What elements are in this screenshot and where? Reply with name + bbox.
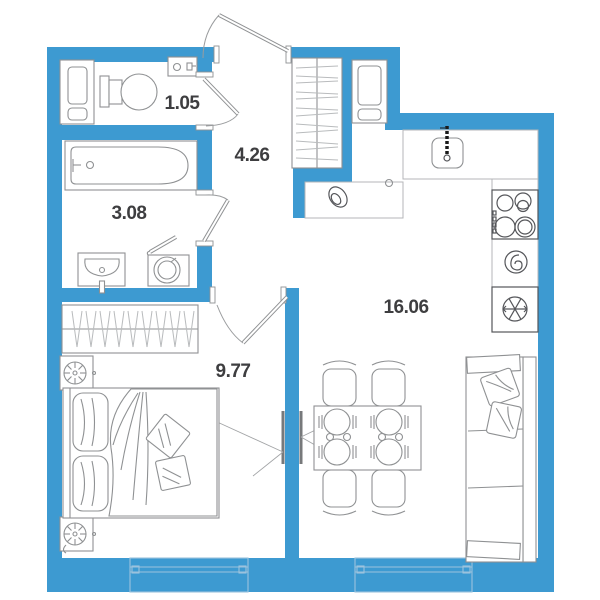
counter-knob <box>386 180 393 187</box>
entrance-door-icon <box>203 15 291 63</box>
chair-icon <box>372 361 405 406</box>
room-label-bathroom: 3.08 <box>112 203 147 224</box>
floor-plan: 1.05 4.26 3.08 9.77 16.06 <box>0 0 600 600</box>
double-bed-icon <box>63 388 219 518</box>
wardrobe-icon <box>62 305 198 353</box>
oven-icon <box>505 251 527 273</box>
pillow-icon <box>486 401 522 439</box>
lamp-icon <box>64 523 86 545</box>
room-label-bedroom: 9.77 <box>216 361 251 382</box>
pillow-icon <box>73 393 108 451</box>
storage-cabinet-icon <box>352 60 387 123</box>
bathtub-icon <box>65 141 197 190</box>
washbasin-icon <box>168 57 197 76</box>
pillow-icon <box>155 455 191 491</box>
cooktop-icon <box>492 190 538 239</box>
interior-door-icon <box>196 72 238 130</box>
wardrobe-icon <box>292 58 342 168</box>
nightstand-icon <box>60 356 96 390</box>
kitchen-sink-icon <box>432 126 463 168</box>
nightstand-icon <box>60 517 96 553</box>
toilet-icon <box>100 74 157 110</box>
chair-icon <box>323 361 356 406</box>
floor-plan-page: 1.05 4.26 3.08 9.77 16.06 <box>0 0 600 600</box>
sofa-icon <box>466 355 536 562</box>
interior-door-icon <box>210 287 287 343</box>
lamp-icon <box>64 362 86 384</box>
chair-icon <box>323 470 356 515</box>
storage-cabinet-icon <box>60 60 94 124</box>
tv-icon <box>215 411 283 476</box>
refrigerator-icon <box>492 287 538 332</box>
decor-vase-icon <box>325 183 351 210</box>
dining-table-icon <box>314 406 421 470</box>
interior-door-icon <box>196 190 228 246</box>
washbasin-icon <box>78 253 125 293</box>
pillow-icon <box>73 456 108 511</box>
chair-icon <box>372 470 405 515</box>
room-label-kitchen-living: 16.06 <box>383 297 428 318</box>
room-label-wc: 1.05 <box>165 93 201 114</box>
washing-machine-icon <box>147 237 189 286</box>
room-label-hallway: 4.26 <box>235 145 270 166</box>
